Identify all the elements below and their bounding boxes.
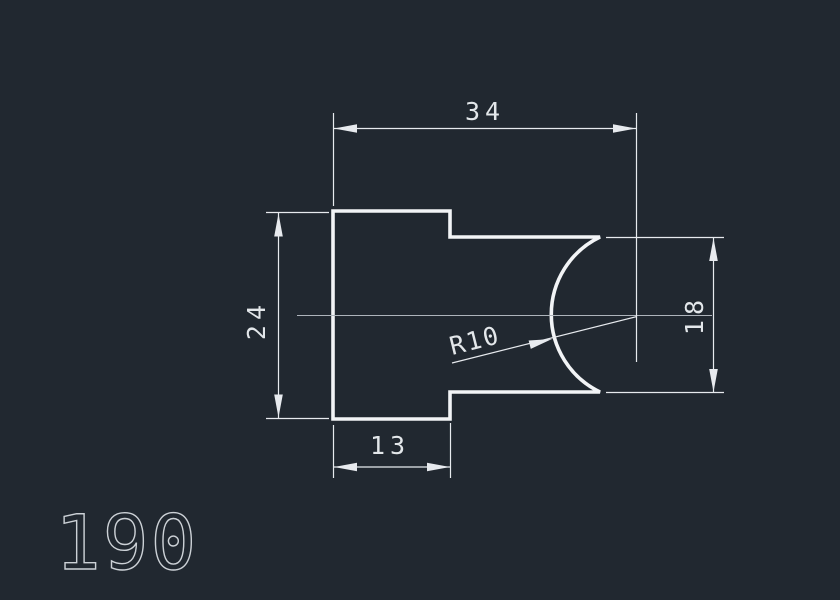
dim-label-total-width: 34 <box>435 99 535 125</box>
arrowhead-top <box>709 238 718 261</box>
arrowhead-top <box>274 214 283 237</box>
cad-drawing-canvas: 34 24 18 13 R10 190 <box>0 0 840 600</box>
dim-label-right-height: 18 <box>682 265 708 365</box>
arrowhead-right <box>427 463 450 472</box>
dim-label-left-height: 24 <box>244 270 270 370</box>
dim-label-left-width: 13 <box>340 433 440 459</box>
arrowhead <box>529 339 552 349</box>
arrowhead-left <box>334 124 357 133</box>
arrowhead-right <box>613 124 636 133</box>
part-number-label: 190 <box>55 505 198 581</box>
arrowhead-bottom <box>709 369 718 392</box>
arrowhead-bottom <box>274 395 283 418</box>
arrowhead-left <box>334 463 357 472</box>
